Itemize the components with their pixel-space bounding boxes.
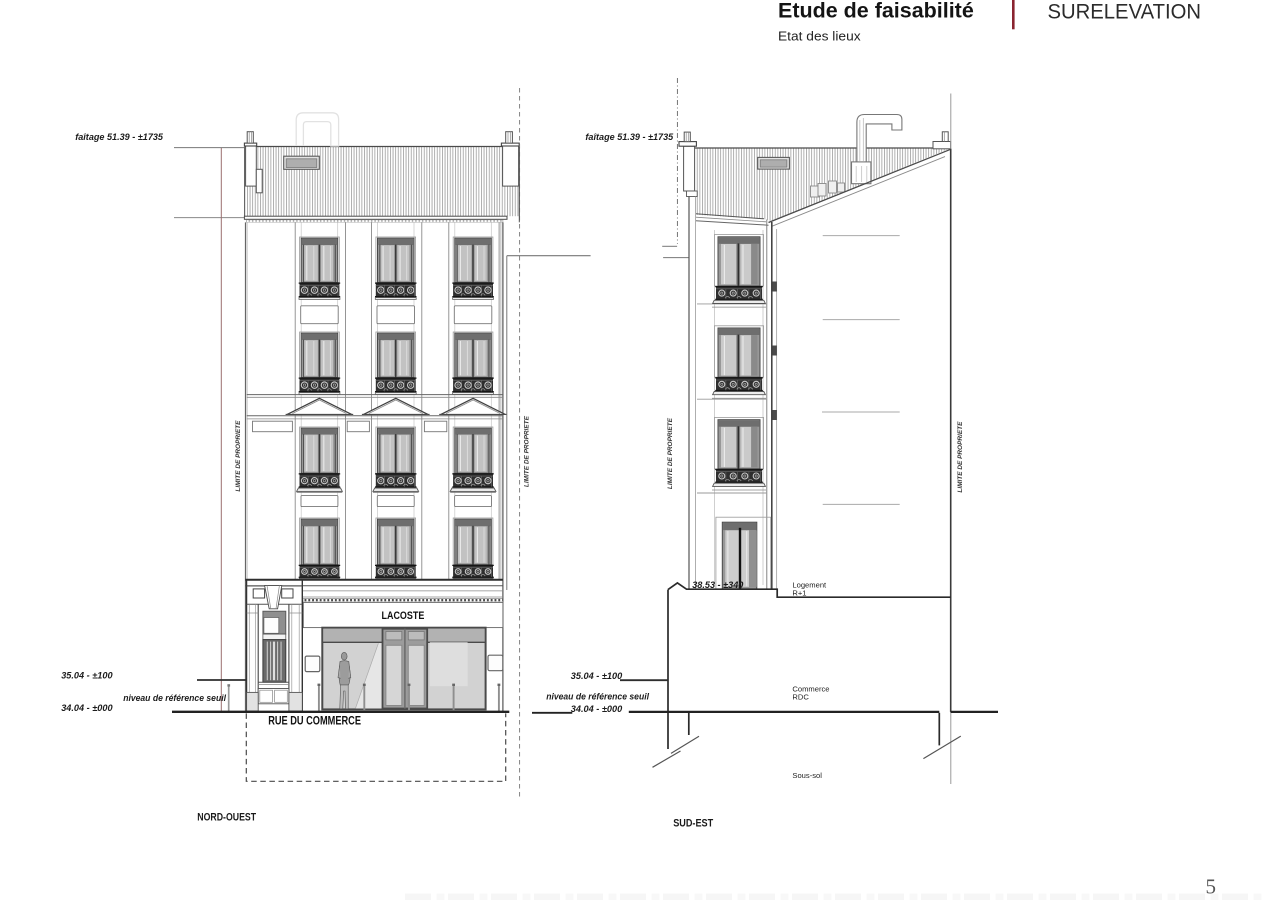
svg-text:RUE DU COMMERCE: RUE DU COMMERCE — [268, 714, 361, 727]
svg-text:niveau de référence seuil: niveau de référence seuil — [123, 692, 226, 703]
svg-text:R+1: R+1 — [792, 589, 806, 598]
svg-text:faîtage 51.39 - ±1735: faîtage 51.39 - ±1735 — [585, 132, 673, 143]
svg-text:35.04 - ±100: 35.04 - ±100 — [571, 670, 623, 681]
svg-text:Etat des lieux: Etat des lieux — [778, 30, 861, 44]
svg-text:34.04 - ±000: 34.04 - ±000 — [571, 703, 623, 714]
svg-text:SURELEVATION: SURELEVATION — [1048, 0, 1202, 23]
svg-text:LACOSTE: LACOSTE — [382, 610, 425, 622]
svg-text:Sous-sol: Sous-sol — [792, 771, 822, 780]
svg-text:LIMITE DE PROPRIETE: LIMITE DE PROPRIETE — [667, 417, 674, 489]
svg-text:35.04 - ±100: 35.04 - ±100 — [61, 670, 113, 681]
svg-text:LIMITE DE PROPRIETE: LIMITE DE PROPRIETE — [523, 415, 530, 487]
svg-text:34.04 - ±000: 34.04 - ±000 — [61, 702, 113, 713]
svg-text:faîtage 51.39 - ±1735: faîtage 51.39 - ±1735 — [75, 132, 163, 143]
svg-text:NORD-OUEST: NORD-OUEST — [197, 811, 256, 823]
svg-text:SUD-EST: SUD-EST — [673, 818, 713, 830]
svg-text:Etude de faisabilité: Etude de faisabilité — [778, 0, 974, 23]
svg-text:LIMITE DE PROPRIETE: LIMITE DE PROPRIETE — [235, 420, 242, 492]
svg-text:LIMITE DE PROPRIETE: LIMITE DE PROPRIETE — [957, 421, 964, 493]
svg-text:RDC: RDC — [792, 692, 809, 701]
svg-text:38.53 - ±340: 38.53 - ±340 — [692, 579, 744, 590]
svg-text:niveau de référence seuil: niveau de référence seuil — [546, 691, 649, 702]
